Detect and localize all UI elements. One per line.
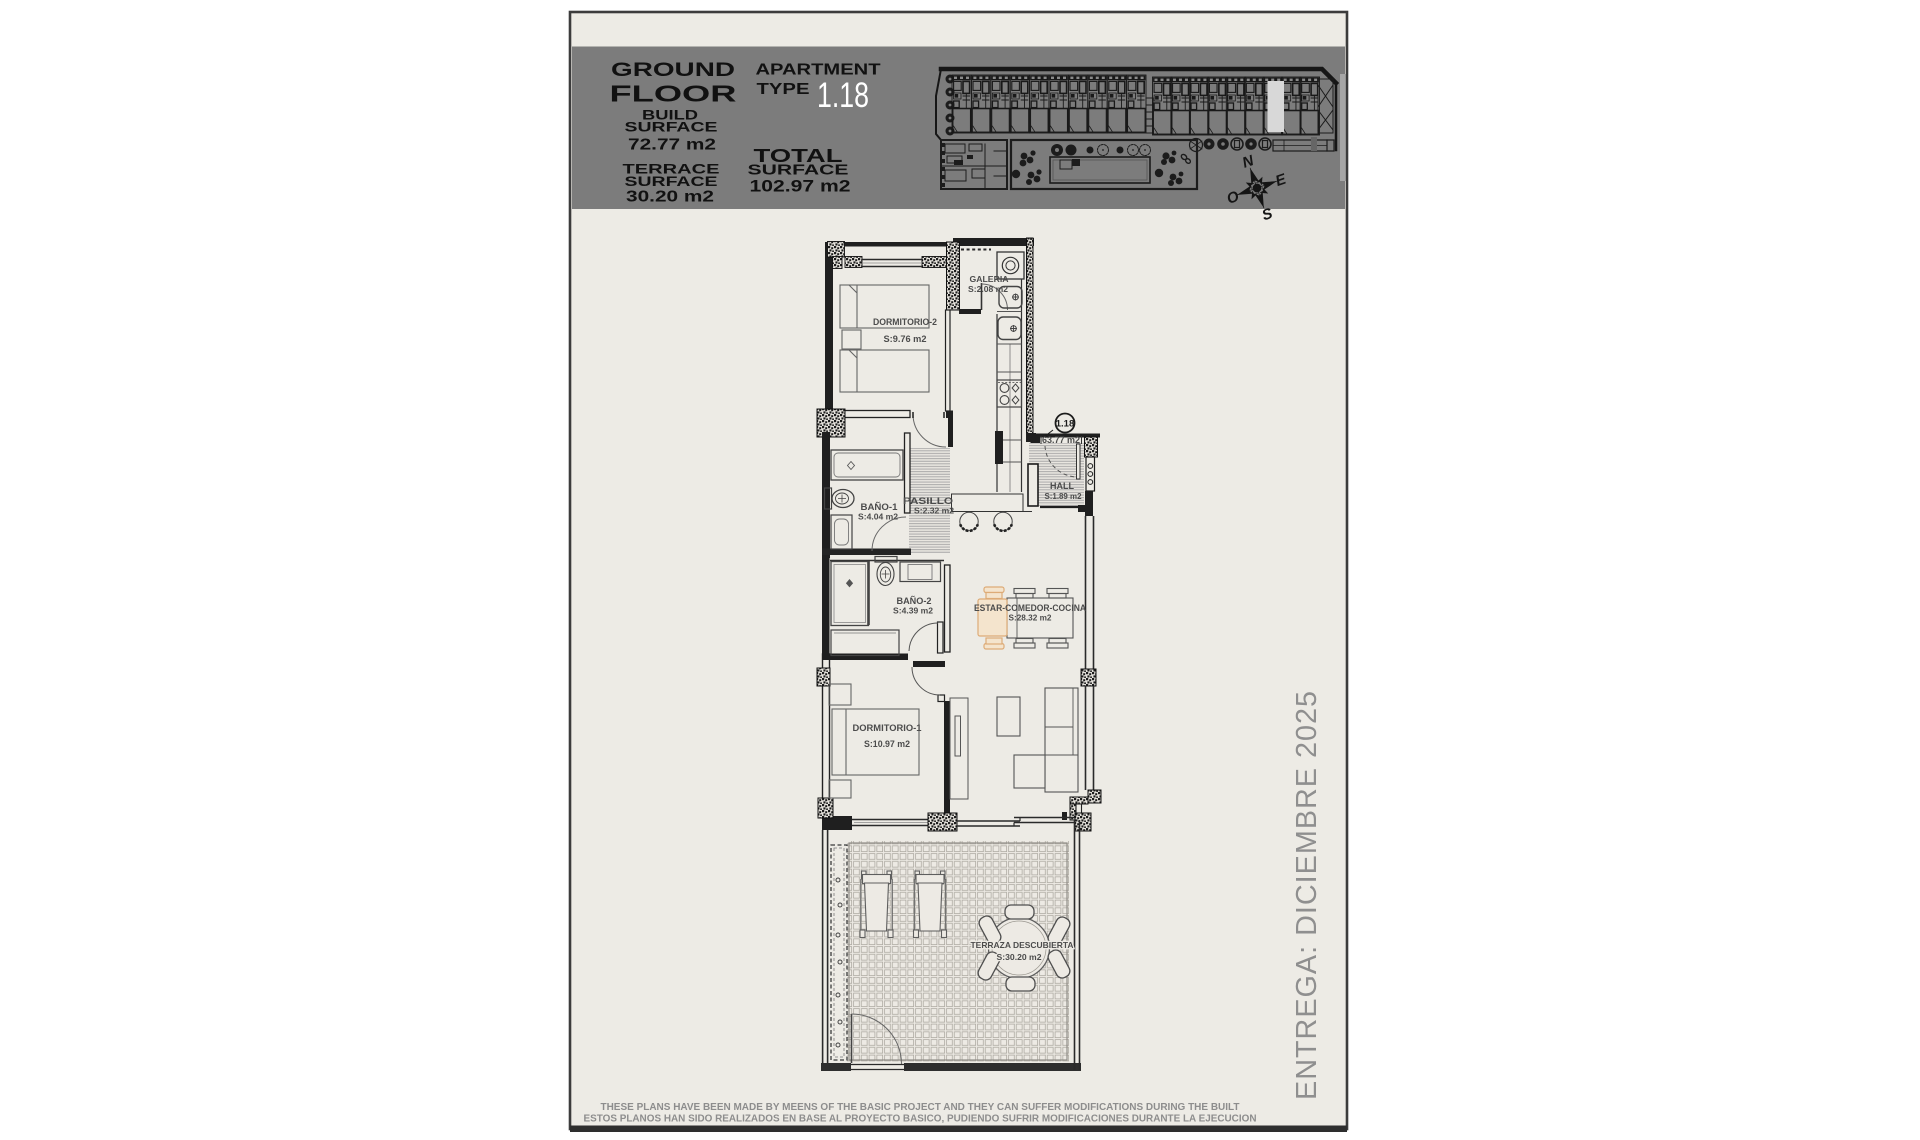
svg-text:63.77 m2: 63.77 m2 [1042,435,1080,445]
svg-text:BAÑO-2: BAÑO-2 [897,596,932,606]
svg-text:SURFACE: SURFACE [625,120,718,135]
svg-text:S:30.20 m2: S:30.20 m2 [997,952,1042,962]
svg-text:ESTAR-COMEDOR-COCINA: ESTAR-COMEDOR-COCINA [974,603,1086,613]
svg-text:DORMITORIO-2: DORMITORIO-2 [873,317,937,327]
svg-text:THESE PLANS HAVE BEEN MADE BY: THESE PLANS HAVE BEEN MADE BY MEENS OF T… [601,1101,1241,1113]
svg-text:TERRAZA DESCUBIERTA: TERRAZA DESCUBIERTA [971,940,1074,950]
svg-text:DORMITORIO-1: DORMITORIO-1 [853,723,922,733]
svg-text:GALERIA: GALERIA [970,274,1009,284]
svg-text:ESTOS PLANOS HAN SIDO REALIZAD: ESTOS PLANOS HAN SIDO REALIZADOS EN BASE… [584,1113,1257,1125]
svg-text:30.20 m2: 30.20 m2 [626,189,714,206]
svg-text:S:10.97 m2: S:10.97 m2 [864,739,910,749]
svg-text:1.18: 1.18 [1056,419,1075,430]
svg-text:BAÑO-1: BAÑO-1 [861,502,898,512]
svg-text:1.18: 1.18 [817,76,869,115]
svg-text:HALL: HALL [1050,481,1074,491]
svg-text:S:4.04 m2: S:4.04 m2 [858,512,898,522]
svg-text:GROUND: GROUND [611,59,735,81]
svg-text:S:2.32 m2: S:2.32 m2 [914,506,954,516]
svg-text:S:9.76 m2: S:9.76 m2 [884,334,927,344]
svg-text:72.77 m2: 72.77 m2 [628,137,716,154]
svg-text:ENTREGA: DICIEMBRE 2025: ENTREGA: DICIEMBRE 2025 [1291,690,1323,1100]
svg-text:S:28.32 m2: S:28.32 m2 [1009,613,1052,623]
svg-text:S:4.39 m2: S:4.39 m2 [893,606,933,616]
svg-text:S:1.89 m2: S:1.89 m2 [1045,491,1082,501]
svg-text:TYPE: TYPE [757,81,810,98]
svg-text:102.97 m2: 102.97 m2 [750,177,851,196]
svg-text:S:2.08 m2: S:2.08 m2 [968,284,1008,294]
svg-text:PASILLO: PASILLO [903,496,953,506]
svg-text:SURFACE: SURFACE [625,174,718,189]
svg-text:FLOOR: FLOOR [610,81,738,107]
